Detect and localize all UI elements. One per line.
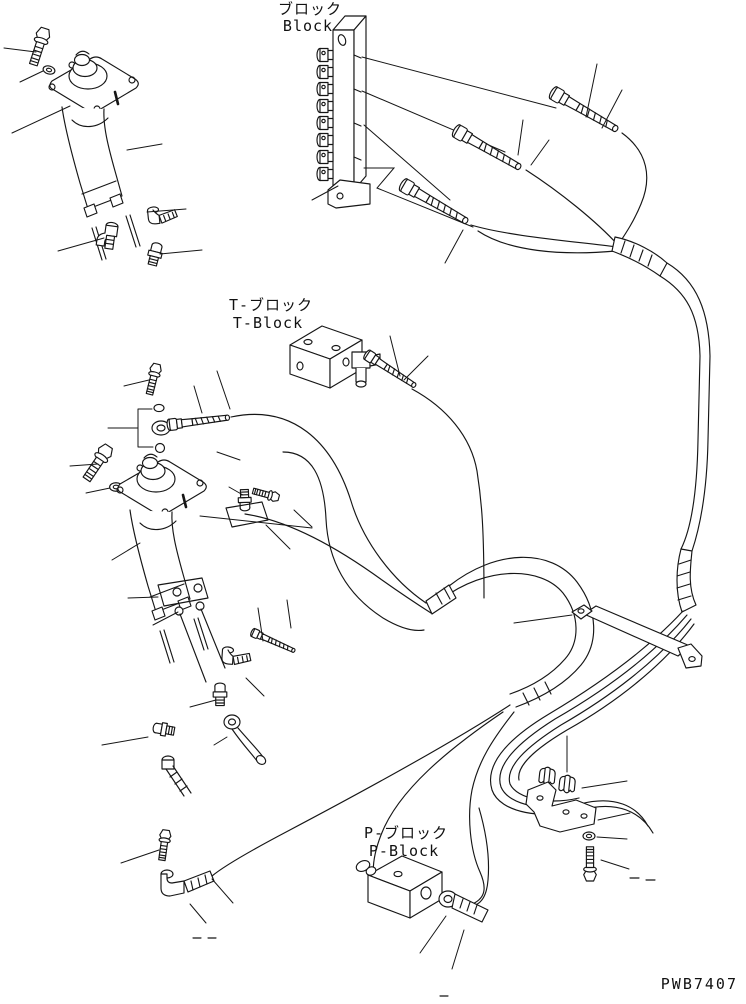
ball-joint bbox=[156, 444, 165, 453]
hose-fitting bbox=[162, 756, 191, 796]
elbow-fitting bbox=[96, 221, 119, 250]
hose-routing bbox=[212, 133, 710, 906]
parts-diagram: ブロック Block T-ブロック T-Block P-ブロック P-Block… bbox=[0, 0, 746, 1004]
washer bbox=[583, 832, 595, 840]
valve-assembly-upper bbox=[4, 26, 202, 266]
mounting-bolt bbox=[27, 26, 52, 66]
nipple-fitting bbox=[213, 683, 227, 706]
banjo-hose-connector bbox=[152, 412, 230, 435]
ppc-valve-lower bbox=[117, 454, 208, 663]
nipple-fitting bbox=[152, 721, 175, 737]
part-code: PWB7407 bbox=[661, 975, 738, 993]
hose-connector bbox=[250, 628, 297, 655]
p-block-label-en: P-Block bbox=[369, 842, 439, 860]
ring bbox=[154, 404, 164, 411]
strap-bracket bbox=[514, 605, 702, 668]
elbow-fitting bbox=[147, 205, 178, 225]
manifold-block-label-jp: ブロック bbox=[278, 0, 342, 18]
elbow-fitting bbox=[222, 647, 252, 666]
clamp-assembly bbox=[526, 736, 655, 881]
hose-clamp bbox=[559, 775, 576, 794]
elbow-hose-end bbox=[161, 870, 214, 896]
p-block-assembly bbox=[355, 856, 488, 996]
valve-assembly-lower bbox=[70, 363, 312, 682]
manifold-ports bbox=[317, 49, 333, 181]
p-block-label-jp: P-ブロック bbox=[364, 824, 448, 842]
manifold-block-label-en: Block bbox=[283, 17, 333, 35]
banjo-elbow-hose bbox=[224, 715, 267, 766]
small-bolt bbox=[252, 486, 280, 502]
hose-connector-b bbox=[451, 123, 524, 173]
hose-connector-a bbox=[548, 85, 621, 135]
t-block-assembly bbox=[290, 326, 428, 391]
hose-wrap-upper bbox=[612, 237, 667, 276]
small-bolt bbox=[144, 363, 163, 396]
connector-leaders bbox=[445, 64, 622, 263]
t-block-hose-connector bbox=[362, 349, 418, 391]
hose-connector-c bbox=[398, 177, 471, 227]
continuation-dashes bbox=[630, 878, 655, 880]
ppc-valve-upper bbox=[49, 51, 140, 260]
t-block-label-en: T-Block bbox=[233, 314, 303, 332]
washer bbox=[42, 65, 56, 76]
bolt-fitting bbox=[156, 829, 171, 861]
mounting-bolt bbox=[80, 442, 114, 483]
manifold-block-assembly bbox=[312, 16, 556, 227]
bolt bbox=[584, 847, 597, 881]
fitting-cluster bbox=[102, 600, 297, 938]
diagram-page: ブロック Block T-ブロック T-Block P-ブロック P-Block… bbox=[0, 0, 746, 1004]
hose-wrap-lower bbox=[677, 549, 696, 612]
hook-hose-fitting bbox=[238, 489, 252, 511]
block-bracket bbox=[328, 180, 370, 208]
t-block-label-jp: T-ブロック bbox=[229, 296, 313, 314]
p-block-hose-connector bbox=[439, 891, 488, 922]
